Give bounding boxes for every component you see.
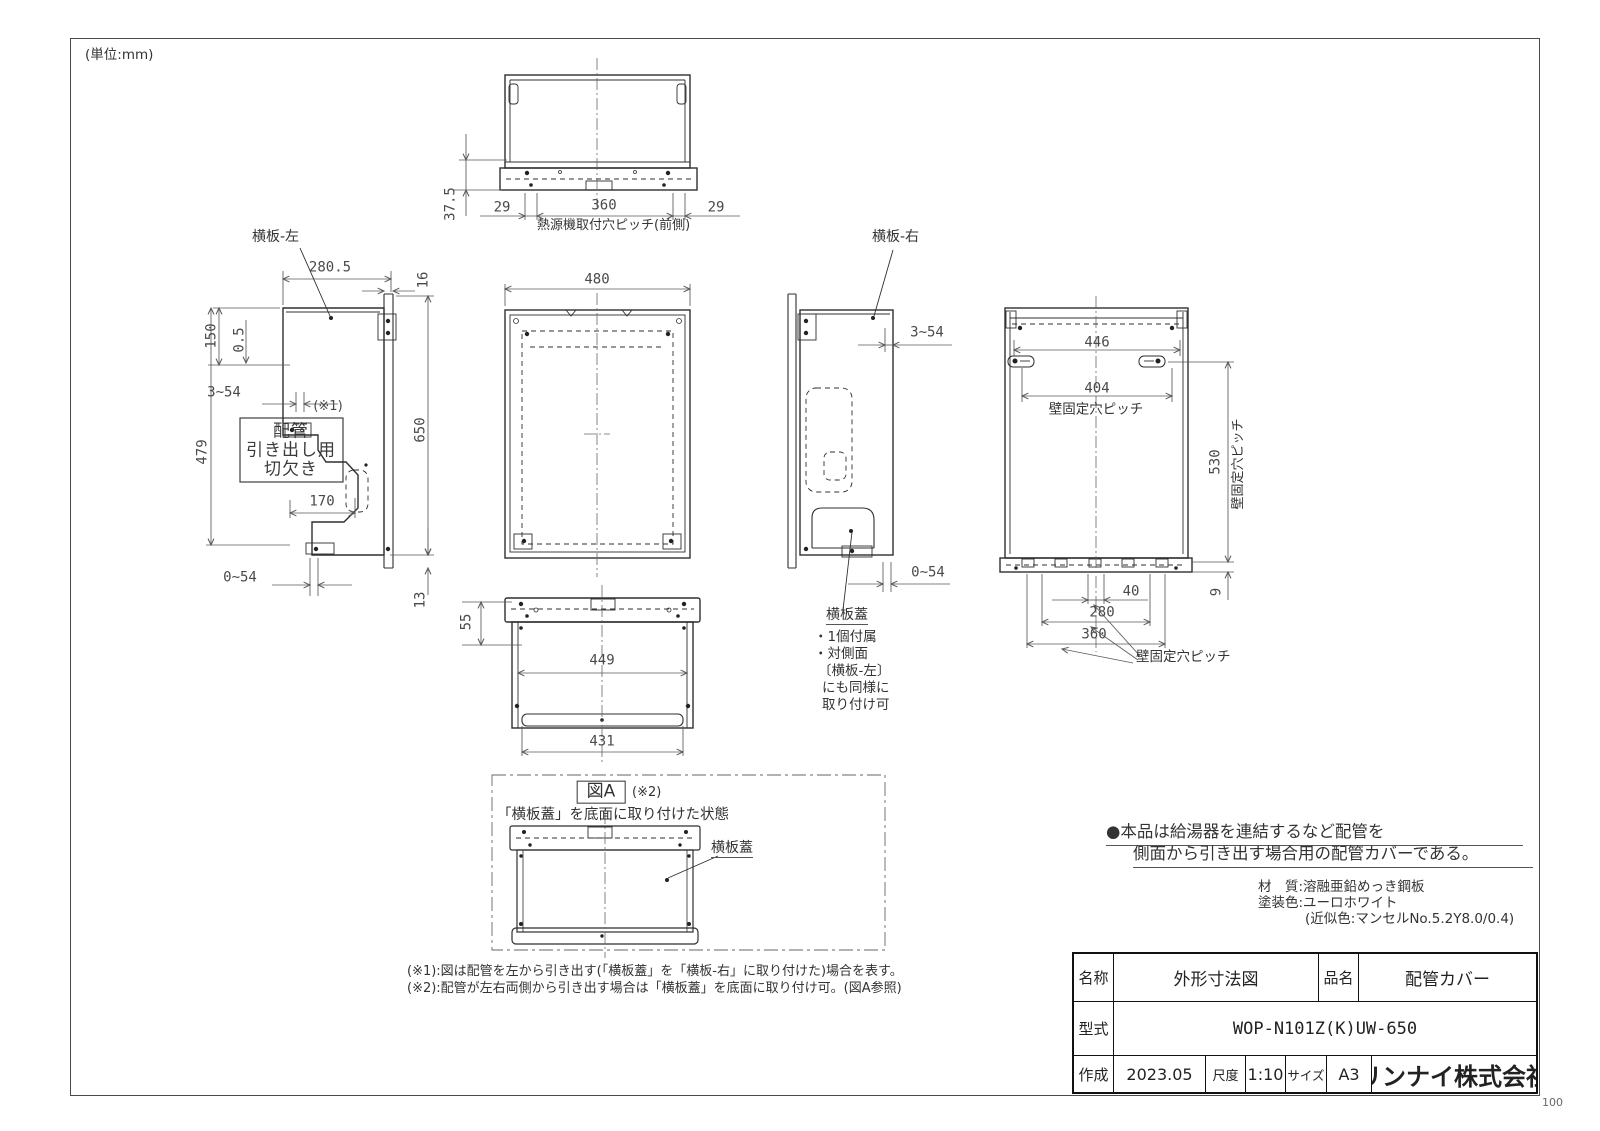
ref-mark-1: (※1)	[313, 400, 342, 414]
scale-label-cell: 尺度	[1206, 1056, 1246, 1092]
paint-color-note: 塗装色:ユーロホワイト	[1258, 896, 1398, 911]
wall-hole-pitch-label: 壁固定穴ピッチ	[1049, 403, 1144, 418]
dim-29-right: 29	[708, 200, 725, 215]
fig-a-subtitle: 「横板蓋」を底面に取り付けた状態	[497, 808, 729, 824]
cover-note-2: ・対側面	[814, 647, 868, 662]
dim-40: 40	[1123, 584, 1140, 599]
rear-view-linework	[1000, 296, 1234, 663]
dim-55: 55	[459, 614, 474, 631]
company-name: リンナイ株式会社	[1372, 1056, 1536, 1092]
left-panel-title: 横板-左	[252, 230, 299, 245]
date-label-cell: 作成	[1074, 1056, 1114, 1092]
dim-150: 150	[204, 323, 219, 348]
date-value-cell: 2023.05	[1114, 1056, 1206, 1092]
dim-449: 449	[589, 653, 614, 668]
cover-note-3: 〔横板-左〕	[818, 664, 890, 679]
dim-range-3-54-left: 3~54	[207, 385, 241, 400]
dim-479: 479	[195, 439, 210, 464]
product-label-cell: 品名	[1319, 954, 1359, 1001]
dim-29-left: 29	[494, 200, 511, 215]
paint-color-sub-note: (近似色:マンセルNo.5.2Y8.0/0.4)	[1305, 912, 1514, 927]
dim-650: 650	[413, 417, 428, 442]
cover-plate-label-right: 横板蓋	[826, 608, 868, 625]
wall-hole-pitch-label-bottom: 壁固定穴ピッチ	[1136, 650, 1231, 665]
title-block-row-1: 名称 外形寸法図 品名 配管カバー	[1074, 954, 1536, 1002]
fig-a-ref: (※2)	[632, 786, 661, 800]
dim-170: 170	[309, 494, 334, 509]
page-number: 100	[1542, 1096, 1563, 1109]
model-value-cell: WOP-N101Z(K)UW-650	[1114, 1002, 1536, 1055]
footnote-2: (※2):配管が左右両側から引き出す場合は「横板蓋」を底面に取り付け可。(図A参…	[407, 982, 902, 996]
dim-range-3-54-right: 3~54	[910, 325, 944, 340]
product-note-line2: 側面から引き出す場合用の配管カバーである。	[1133, 844, 1478, 863]
cutout-label-line2: 引き出し用	[246, 442, 336, 461]
dim-37-5: 37.5	[443, 187, 458, 221]
heat-source-pitch-label: 熱源機取付穴ピッチ(前側)	[537, 219, 690, 233]
cutout-label-line1: 配管	[273, 423, 309, 442]
cover-note-1: ・1個付属	[814, 630, 877, 645]
dim-480: 480	[584, 272, 609, 287]
drawing-sheet: (単位:mm) 29 360 29 37.5 熱源機取付穴ピッチ(前側) 横板-…	[0, 0, 1600, 1131]
dim-360-rear: 360	[1081, 627, 1106, 642]
dim-range-0-54-right: 0~54	[911, 565, 945, 580]
footnote-1: (※1):図は配管を左から引き出す(「横板蓋」を「横板-右」に取り付けた)場合を…	[407, 965, 903, 979]
dim-9: 9	[1209, 588, 1224, 596]
dim-280: 280	[1089, 605, 1114, 620]
front-view-linework	[505, 284, 690, 577]
size-label-cell: サイズ	[1286, 1056, 1327, 1092]
dim-404: 404	[1084, 381, 1109, 396]
model-label-cell: 型式	[1074, 1002, 1114, 1055]
dim-530: 530	[1208, 449, 1223, 474]
product-note-line2-rule: 側面から引き出す場合用の配管カバーである。	[1133, 840, 1533, 868]
product-value-cell: 配管カバー	[1359, 954, 1536, 1001]
material-note: 材 質:溶融亜鉛めっき鋼板	[1258, 880, 1425, 895]
dim-0-5: 0.5	[232, 327, 247, 352]
dim-280-5: 280.5	[309, 260, 351, 275]
fig-a-title: 図A	[577, 781, 626, 804]
dim-431: 431	[589, 734, 614, 749]
right-panel-title: 横板-右	[872, 230, 919, 245]
right-side-view-linework	[788, 250, 952, 610]
left-side-view-linework	[206, 248, 434, 596]
wall-hole-pitch-label-vertical: 壁固定穴ピッチ	[1232, 418, 1246, 509]
dim-360-top: 360	[591, 198, 616, 213]
title-block: 名称 外形寸法図 品名 配管カバー 型式 WOP-N101Z(K)UW-650 …	[1072, 952, 1538, 1094]
cover-note-5: 取り付け可	[822, 698, 890, 713]
size-value-cell: A3	[1327, 1056, 1372, 1092]
scale-value-cell: 1:10	[1246, 1056, 1286, 1092]
bottom-view-linework	[462, 585, 700, 762]
title-block-row-3: 作成 2023.05 尺度 1:10 サイズ A3 リンナイ株式会社	[1074, 1056, 1536, 1092]
dim-13: 13	[413, 592, 428, 609]
top-view-linework	[454, 58, 740, 220]
fig-a-linework	[492, 775, 885, 958]
name-value-cell: 外形寸法図	[1114, 954, 1319, 1001]
dim-16: 16	[416, 272, 431, 289]
product-note-line1: ●本品は給湯器を連結するなど配管を	[1106, 822, 1384, 841]
name-label-cell: 名称	[1074, 954, 1114, 1001]
cutout-label-line3: 切欠き	[264, 461, 318, 480]
dim-446: 446	[1084, 335, 1109, 350]
cover-plate-label-fig-a: 横板蓋	[711, 841, 753, 858]
unit-note: (単位:mm)	[85, 48, 153, 63]
cover-note-4: にも同様に	[822, 681, 890, 696]
dim-range-0-54-left: 0~54	[223, 570, 257, 585]
title-block-row-2: 型式 WOP-N101Z(K)UW-650	[1074, 1002, 1536, 1056]
